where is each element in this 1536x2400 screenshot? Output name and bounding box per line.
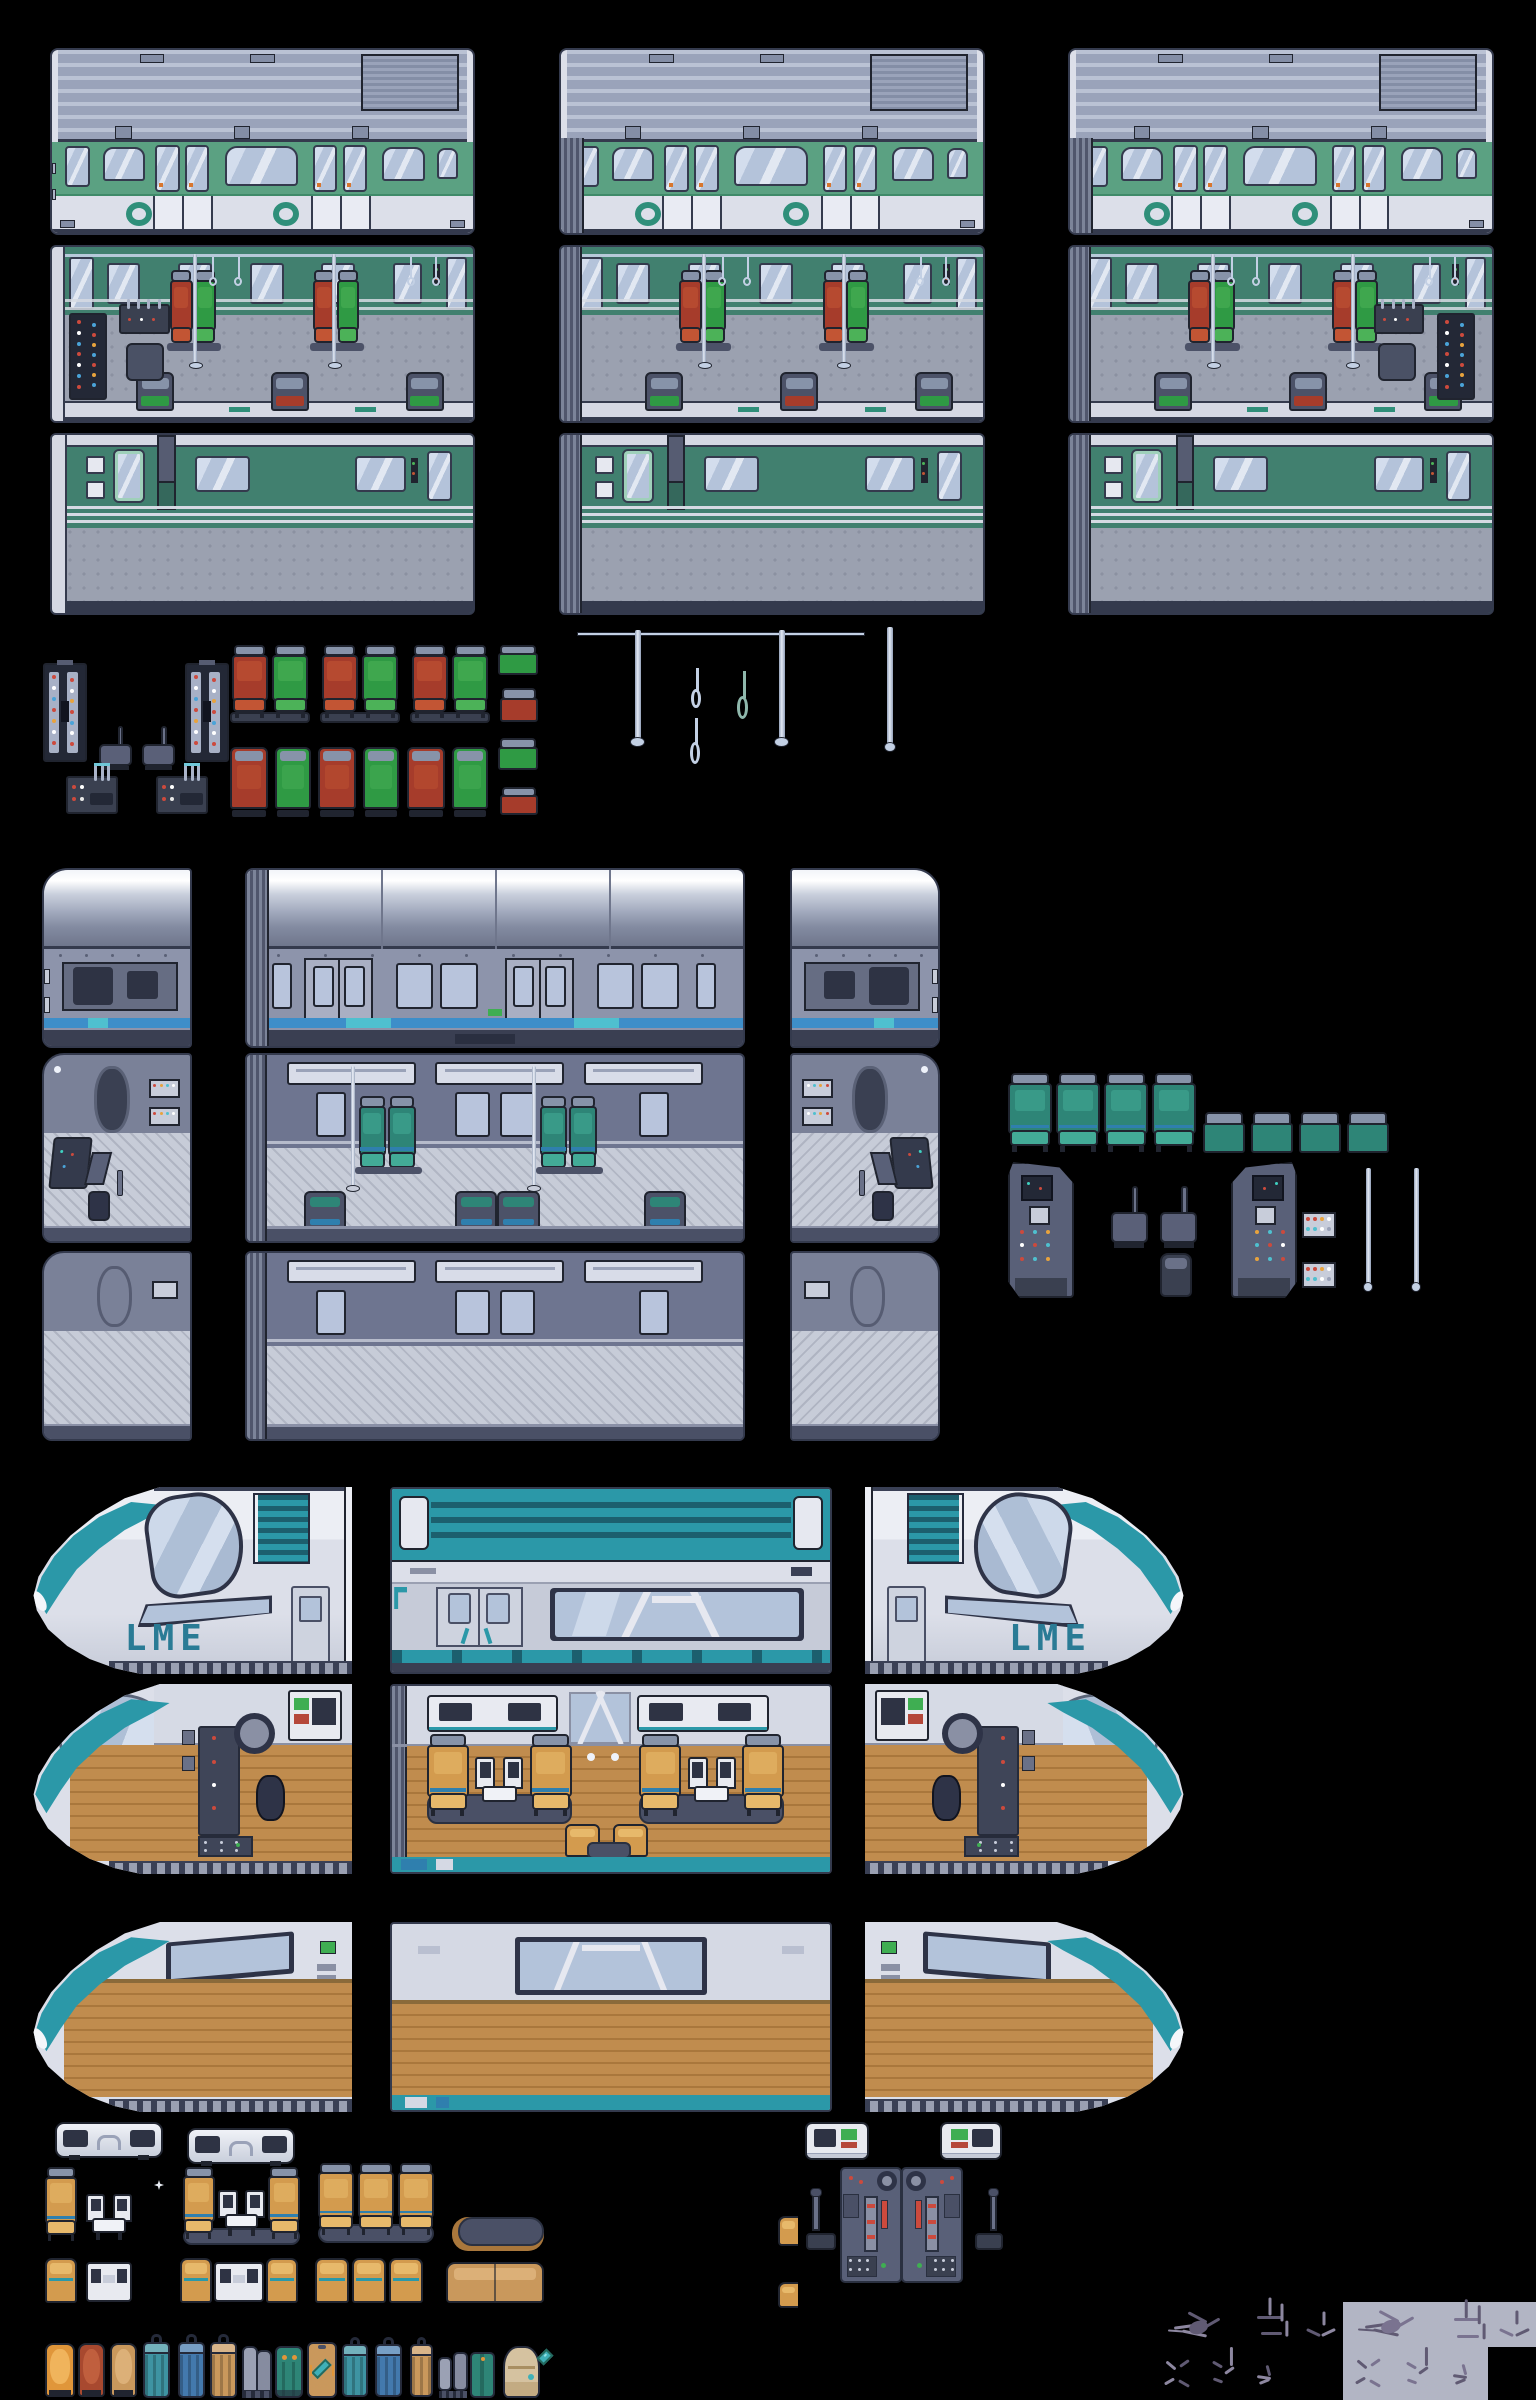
backwall-box-1	[86, 456, 105, 474]
roof-hatch-2	[250, 54, 275, 64]
rivet	[894, 954, 897, 957]
green-roof	[1076, 50, 1485, 142]
strap-cord	[722, 257, 724, 278]
cabcon-key	[934, 2268, 937, 2271]
seat-foot-l	[747, 1810, 751, 1817]
seat-body	[232, 655, 268, 702]
nose-roof-grille	[907, 1493, 965, 1564]
teal-dash-1	[229, 407, 250, 412]
strap-ring	[737, 696, 748, 719]
strap-cord	[695, 718, 698, 744]
strap-ring	[942, 277, 950, 286]
case-ribs	[412, 2357, 431, 2395]
swatch-decal-tripod	[1495, 2314, 1530, 2343]
roof-hatch-1	[1158, 54, 1183, 64]
coupling-tab-2	[52, 189, 56, 200]
door-handle-h2	[1208, 183, 1212, 187]
seat-body	[362, 655, 398, 702]
cyan-segment	[874, 1018, 894, 1029]
rack-foot-l	[201, 2161, 211, 2166]
backwall-stripe-1	[52, 506, 473, 509]
roof-cap-r	[793, 1496, 824, 1550]
lint-blue-dash-2	[436, 1859, 454, 1870]
driver-console-left	[1008, 1162, 1074, 1298]
door-teal-y2	[484, 1628, 493, 1644]
col-dot	[212, 1783, 216, 1787]
nose-shell: LME	[32, 1487, 352, 1674]
btn	[1268, 1257, 1272, 1261]
decal-mark	[1281, 2304, 1284, 2322]
seatback-top-bar	[235, 751, 264, 760]
lme-nose-backwall-left	[32, 1922, 352, 2112]
console-keyboard	[180, 793, 203, 805]
seat-foot-l	[366, 712, 370, 718]
ttop-bar	[103, 2275, 115, 2284]
scr-dot	[1275, 1182, 1278, 1185]
panel-dot	[1460, 323, 1464, 327]
cabcon-red-lever	[881, 2200, 888, 2229]
seat-foot-r	[427, 2229, 431, 2235]
button-panel-1	[1302, 1212, 1336, 1238]
s-window-1	[316, 1092, 346, 1137]
panel-led	[194, 730, 198, 734]
seat-body-panel	[274, 2183, 295, 2202]
lcar-door-win-b	[486, 1593, 509, 1624]
handrail-rack	[577, 630, 865, 752]
leverS-base	[806, 2233, 836, 2250]
decal-mark	[1212, 2361, 1223, 2369]
console-pin	[184, 765, 187, 781]
key-green	[977, 1843, 981, 1847]
backwall-stripe-2	[561, 513, 983, 516]
cab-seat	[872, 1191, 894, 1221]
pole-foot-2	[1346, 362, 1360, 369]
luggage-rack-strip-2	[435, 1062, 564, 1084]
lever-base	[142, 744, 174, 766]
seat-foot-l	[48, 2235, 51, 2241]
luggage-rack-strip-3	[584, 1260, 703, 1282]
seat-body-panel	[1336, 287, 1350, 309]
cabcon-flip	[840, 2167, 902, 2283]
decal-mark	[1499, 2328, 1513, 2337]
strap-ring	[432, 277, 440, 286]
pole-foot	[1363, 1282, 1373, 1292]
cab-body	[790, 868, 940, 1048]
col-dot	[1001, 1760, 1005, 1764]
rack-pole-1	[635, 630, 641, 742]
hand-strap-1	[690, 668, 704, 714]
mini-table	[694, 1786, 729, 1803]
green-window-band	[52, 142, 473, 197]
btn	[1268, 1230, 1272, 1234]
seatback-top-bar	[323, 751, 352, 760]
backwall-door-glass-l	[624, 451, 651, 501]
seat-trim	[400, 2211, 432, 2214]
nose-door	[291, 1586, 329, 1665]
seat-foot-l	[235, 712, 239, 718]
cabcon-green	[917, 2263, 922, 2268]
track-tick	[928, 2220, 936, 2224]
bp-dot2	[1327, 1227, 1331, 1231]
btn	[826, 1112, 829, 1115]
win-brace-l	[620, 1592, 653, 1636]
decal-mark	[1261, 2332, 1283, 2335]
swatch-decal-burst	[1358, 2312, 1424, 2343]
bp-dot2	[1306, 1227, 1310, 1231]
floor-seatback-bar	[651, 378, 678, 388]
cabcon-wing	[843, 2194, 859, 2219]
interior-window-4	[1268, 263, 1302, 305]
wall-stripe-1	[561, 299, 983, 302]
s-window-4	[639, 1290, 669, 1335]
hand-strap-int-1	[717, 257, 727, 295]
dconsole-flip	[1231, 1162, 1297, 1298]
cabint-stool	[256, 1775, 285, 1821]
nose-door-window	[299, 1596, 322, 1623]
seat-cushion	[429, 1793, 467, 1809]
lcar-window-frame	[550, 1588, 804, 1641]
wall-knob-2	[611, 1753, 619, 1761]
lme-cab-interior-left	[32, 1684, 352, 1874]
silver-cab-interior-right	[790, 1053, 940, 1243]
teal-wall-seat-4	[569, 1096, 597, 1174]
wall-seat-red-1	[679, 270, 702, 350]
rivet	[559, 954, 562, 957]
backwall-bottom	[1070, 601, 1492, 613]
seat-foot-l	[1108, 1146, 1112, 1152]
seatback-base	[409, 810, 442, 817]
teal-back-bar	[650, 1197, 681, 1207]
backwall-floor	[561, 528, 983, 601]
panel-led	[212, 721, 216, 725]
decal-swatch-panel	[1343, 2302, 1536, 2400]
key	[1010, 1849, 1013, 1852]
decal-ring-scratch	[1162, 2360, 1192, 2392]
bags-base	[439, 2391, 467, 2398]
door-operator-panel	[1437, 313, 1475, 400]
cab-side-window	[127, 971, 159, 999]
stanchion-pole-int-1	[193, 254, 197, 365]
floor-seatback-bar	[1160, 378, 1187, 388]
cabcon-key	[866, 2259, 869, 2262]
roof-ac-unit	[870, 54, 968, 111]
cabint-knob-l2	[182, 1756, 195, 1771]
cabback-bottom	[792, 1424, 938, 1439]
door-split-1	[691, 196, 693, 228]
case-body	[375, 2344, 402, 2397]
s-window-3	[500, 1290, 535, 1335]
dconsole-screen	[1252, 1175, 1284, 1201]
strap-cord	[747, 257, 749, 278]
lback-mark-l	[418, 1946, 440, 1953]
console-dot-r2	[72, 797, 76, 801]
small-back-body	[1347, 1123, 1389, 1153]
train-branding-label: LME	[1009, 1618, 1092, 1659]
seat-body-panel	[1063, 1090, 1093, 1111]
cabint-stool	[932, 1775, 961, 1821]
seat-body	[452, 655, 488, 702]
cab-bottom-strip	[792, 1226, 938, 1241]
teal-seat-back-1	[1203, 1112, 1245, 1153]
console-dot-white	[1394, 318, 1397, 321]
duo-leg-r	[118, 2233, 122, 2240]
seat-cushion	[323, 698, 356, 713]
seat-back-red	[78, 2343, 105, 2397]
panel-led	[212, 710, 216, 714]
console-knob	[158, 299, 161, 309]
btn	[1255, 1243, 1259, 1247]
table-back-1	[86, 2262, 132, 2302]
gangway-bellows-back	[1070, 435, 1091, 613]
backwall-box-2	[86, 481, 105, 499]
oback-top	[50, 2263, 72, 2274]
cabcon-track	[864, 2196, 878, 2252]
rack-slot	[445, 1267, 555, 1270]
underframe-box	[455, 1034, 515, 1045]
seat-back-tan	[110, 2343, 137, 2397]
noseback-gray-box-1	[881, 1964, 900, 1972]
cabint-flip	[32, 1684, 352, 1874]
roof-divider-3	[609, 870, 611, 949]
roof-clamp-1	[625, 126, 641, 138]
rack-pole-foot-1	[630, 737, 645, 747]
table-back-2	[214, 2262, 264, 2302]
mid-vent-r	[791, 1567, 813, 1576]
seat-foot-r	[391, 712, 395, 718]
seat-body-panel	[188, 2183, 209, 2202]
luggage-rack-strip-2	[435, 1260, 564, 1282]
door-win-b	[545, 966, 566, 1006]
track-tick	[867, 2235, 875, 2239]
panel-dot	[77, 385, 81, 389]
seat-foot-r	[776, 1810, 780, 1817]
panel-led	[70, 731, 74, 735]
gangway-bellows-si	[247, 1253, 267, 1439]
floor-seatback-color	[410, 396, 438, 406]
door-handle-h2	[699, 183, 703, 187]
driver-console-right	[1231, 1162, 1297, 1298]
lever-foot	[145, 766, 171, 770]
door-win-b	[344, 966, 365, 1006]
backwall-bottom	[52, 601, 473, 613]
seat-foot-l	[1012, 1146, 1016, 1152]
duo-table	[225, 2214, 259, 2228]
console-dot-r1	[72, 785, 76, 789]
seat-body-panel	[324, 2179, 348, 2198]
teal-seat-back-2	[1251, 1112, 1293, 1153]
console-dot-w2	[170, 797, 174, 801]
bagd-lump-b	[256, 2350, 272, 2392]
rack-slot-a	[439, 1703, 472, 1720]
panel-led	[70, 689, 74, 693]
pole-foot-1	[1207, 362, 1221, 369]
cabcon-key	[942, 2259, 945, 2262]
panel-led	[212, 678, 216, 682]
backwall-stripe-1	[1070, 506, 1492, 509]
console-pin-cap	[94, 763, 109, 766]
roundel-2	[1292, 202, 1318, 226]
strap-cord	[1454, 257, 1456, 278]
cabcon-keypad	[847, 2256, 877, 2276]
machine-base	[807, 2153, 867, 2158]
cabback-body	[42, 1251, 192, 1441]
duo-slot-a	[223, 2195, 233, 2208]
blue-stripe	[247, 1018, 743, 1029]
track-tick	[928, 2204, 936, 2208]
strap-ring	[1227, 277, 1235, 286]
hand-strap-int-1	[208, 257, 218, 295]
door-split-1	[182, 196, 184, 228]
roof-hatch-2	[760, 54, 785, 64]
machine-green-label	[294, 1698, 309, 1709]
swatch-decal-sburst	[1451, 2367, 1478, 2389]
seat-foot-r	[1043, 1146, 1047, 1152]
conductor-knob-console	[119, 304, 170, 334]
suitcase-tan-2	[410, 2337, 433, 2397]
cab-bottom-strip	[44, 1226, 190, 1241]
end-door-window	[65, 146, 90, 187]
seat-foot-r	[260, 712, 264, 718]
green-car-2-interior	[559, 245, 985, 423]
end-grille-r	[960, 220, 975, 228]
backwall-stripe-3	[561, 520, 983, 523]
cab-side-window	[824, 971, 856, 999]
teal-back-accent	[650, 1219, 681, 1225]
seat-body-panel	[364, 2179, 388, 2198]
strap-ring	[234, 277, 242, 286]
green-car-1-exterior	[50, 48, 475, 235]
decal-mark	[1454, 2318, 1479, 2321]
orange-back-2	[180, 2258, 212, 2303]
silver-car-backwall	[245, 1251, 745, 1441]
console-pin	[191, 765, 194, 781]
swatch-decal-branch	[1405, 2353, 1432, 2394]
rack-trim	[429, 1727, 556, 1731]
machine-red-label	[294, 1714, 309, 1723]
luggage-rack-strip-1	[287, 1260, 416, 1282]
seat-body-panel	[237, 661, 261, 681]
decal-mark	[1462, 2364, 1468, 2375]
rack-pole-2	[779, 630, 785, 742]
seat-pair-red-green-3	[410, 645, 490, 723]
pole-foot-1	[698, 362, 712, 369]
door-split-1	[1200, 196, 1202, 228]
backwall-stripe-3	[52, 520, 473, 523]
btn	[1255, 1230, 1259, 1234]
seat-up-red-2	[318, 747, 356, 817]
seat-cushion	[359, 2215, 392, 2229]
group-seat-r-2	[742, 1734, 784, 1816]
conductor-console-2	[156, 776, 208, 814]
seat-pair-red-green-2	[320, 645, 400, 723]
cabcon-key	[866, 2268, 869, 2271]
cabint-shell	[865, 1684, 1185, 1874]
sprite-sheet-canvas: LMELME	[0, 0, 1536, 2400]
floor-seatback-1	[645, 372, 683, 410]
roof-clamp-2	[743, 126, 759, 138]
green-roof	[567, 50, 976, 142]
btn	[1268, 1243, 1272, 1247]
door-handle-h3	[1336, 183, 1340, 187]
seat-foot-l	[362, 2229, 366, 2235]
panel-dot	[1445, 363, 1449, 367]
lme-nose-exterior-left: LME	[32, 1487, 352, 1674]
duo-leg-l	[228, 2228, 232, 2235]
coupling-tab-1	[52, 163, 56, 174]
decal-burst-large	[1168, 2313, 1230, 2343]
equipment-box	[126, 343, 164, 381]
key	[979, 1849, 982, 1852]
strap-ring	[916, 277, 924, 286]
pole-foot-1	[189, 362, 203, 369]
rack-window-r	[262, 2136, 287, 2154]
decal-mark	[1482, 2323, 1485, 2339]
overhead-rack-2	[637, 1695, 768, 1732]
silver-cab-interior-left	[42, 1053, 192, 1243]
strap-cord	[238, 257, 240, 278]
lme-nose-exterior-right: LME	[865, 1487, 1185, 1674]
bottom-edge	[561, 417, 983, 421]
seat-trim	[541, 1147, 565, 1150]
case-body	[410, 2344, 433, 2397]
gangway-bellows-int	[1070, 247, 1091, 421]
lme-nose-backwall-right	[865, 1922, 1185, 2112]
panel-dot	[1445, 331, 1449, 335]
win-brace-top	[652, 1596, 701, 1603]
teal-back-accent	[310, 1219, 341, 1225]
teal-seat-2	[1056, 1073, 1100, 1152]
decal-mark	[1465, 2299, 1468, 2318]
seat-trim	[360, 1147, 384, 1150]
panel-led	[52, 741, 56, 745]
oback-trim	[356, 2278, 382, 2281]
interior-window-4	[250, 263, 284, 305]
console-pin	[94, 765, 97, 781]
machine-red-label	[841, 2142, 858, 2149]
lback-wood	[392, 2004, 830, 2095]
btn	[1281, 1257, 1285, 1261]
seat-cushion	[1154, 1130, 1194, 1146]
oback-trim	[184, 2278, 209, 2281]
lback-stripe-dash-1	[405, 2097, 427, 2108]
panel-dot	[77, 363, 81, 367]
decal-mark	[1322, 2311, 1325, 2325]
leverS-base	[975, 2233, 1003, 2250]
decal-branch-scratch	[1210, 2353, 1237, 2393]
lback-glass	[520, 1942, 701, 1990]
tan-bag-pile	[503, 2346, 540, 2398]
seat-cushion	[184, 2219, 213, 2233]
cabcon-red-lever	[915, 2200, 922, 2229]
console-dot-red2	[152, 318, 155, 321]
machine-screen	[814, 2129, 836, 2147]
door-win-a	[513, 966, 534, 1006]
lint-teal-stripe	[392, 1857, 830, 1872]
btn	[160, 1084, 163, 1087]
seat-foot-r	[347, 2229, 351, 2235]
rivet	[607, 954, 610, 957]
small-back-body	[1203, 1123, 1245, 1153]
strap-ring	[743, 277, 751, 286]
seat-foot-r	[294, 2233, 297, 2239]
small-back-body	[500, 698, 538, 722]
seat-trim	[1107, 1125, 1146, 1128]
lme-car-interior	[390, 1684, 832, 1874]
roof-clamp-3	[352, 126, 368, 138]
cab-flip	[42, 868, 192, 1048]
console-keyboard	[90, 793, 113, 805]
seat-cushion	[389, 1152, 415, 1168]
